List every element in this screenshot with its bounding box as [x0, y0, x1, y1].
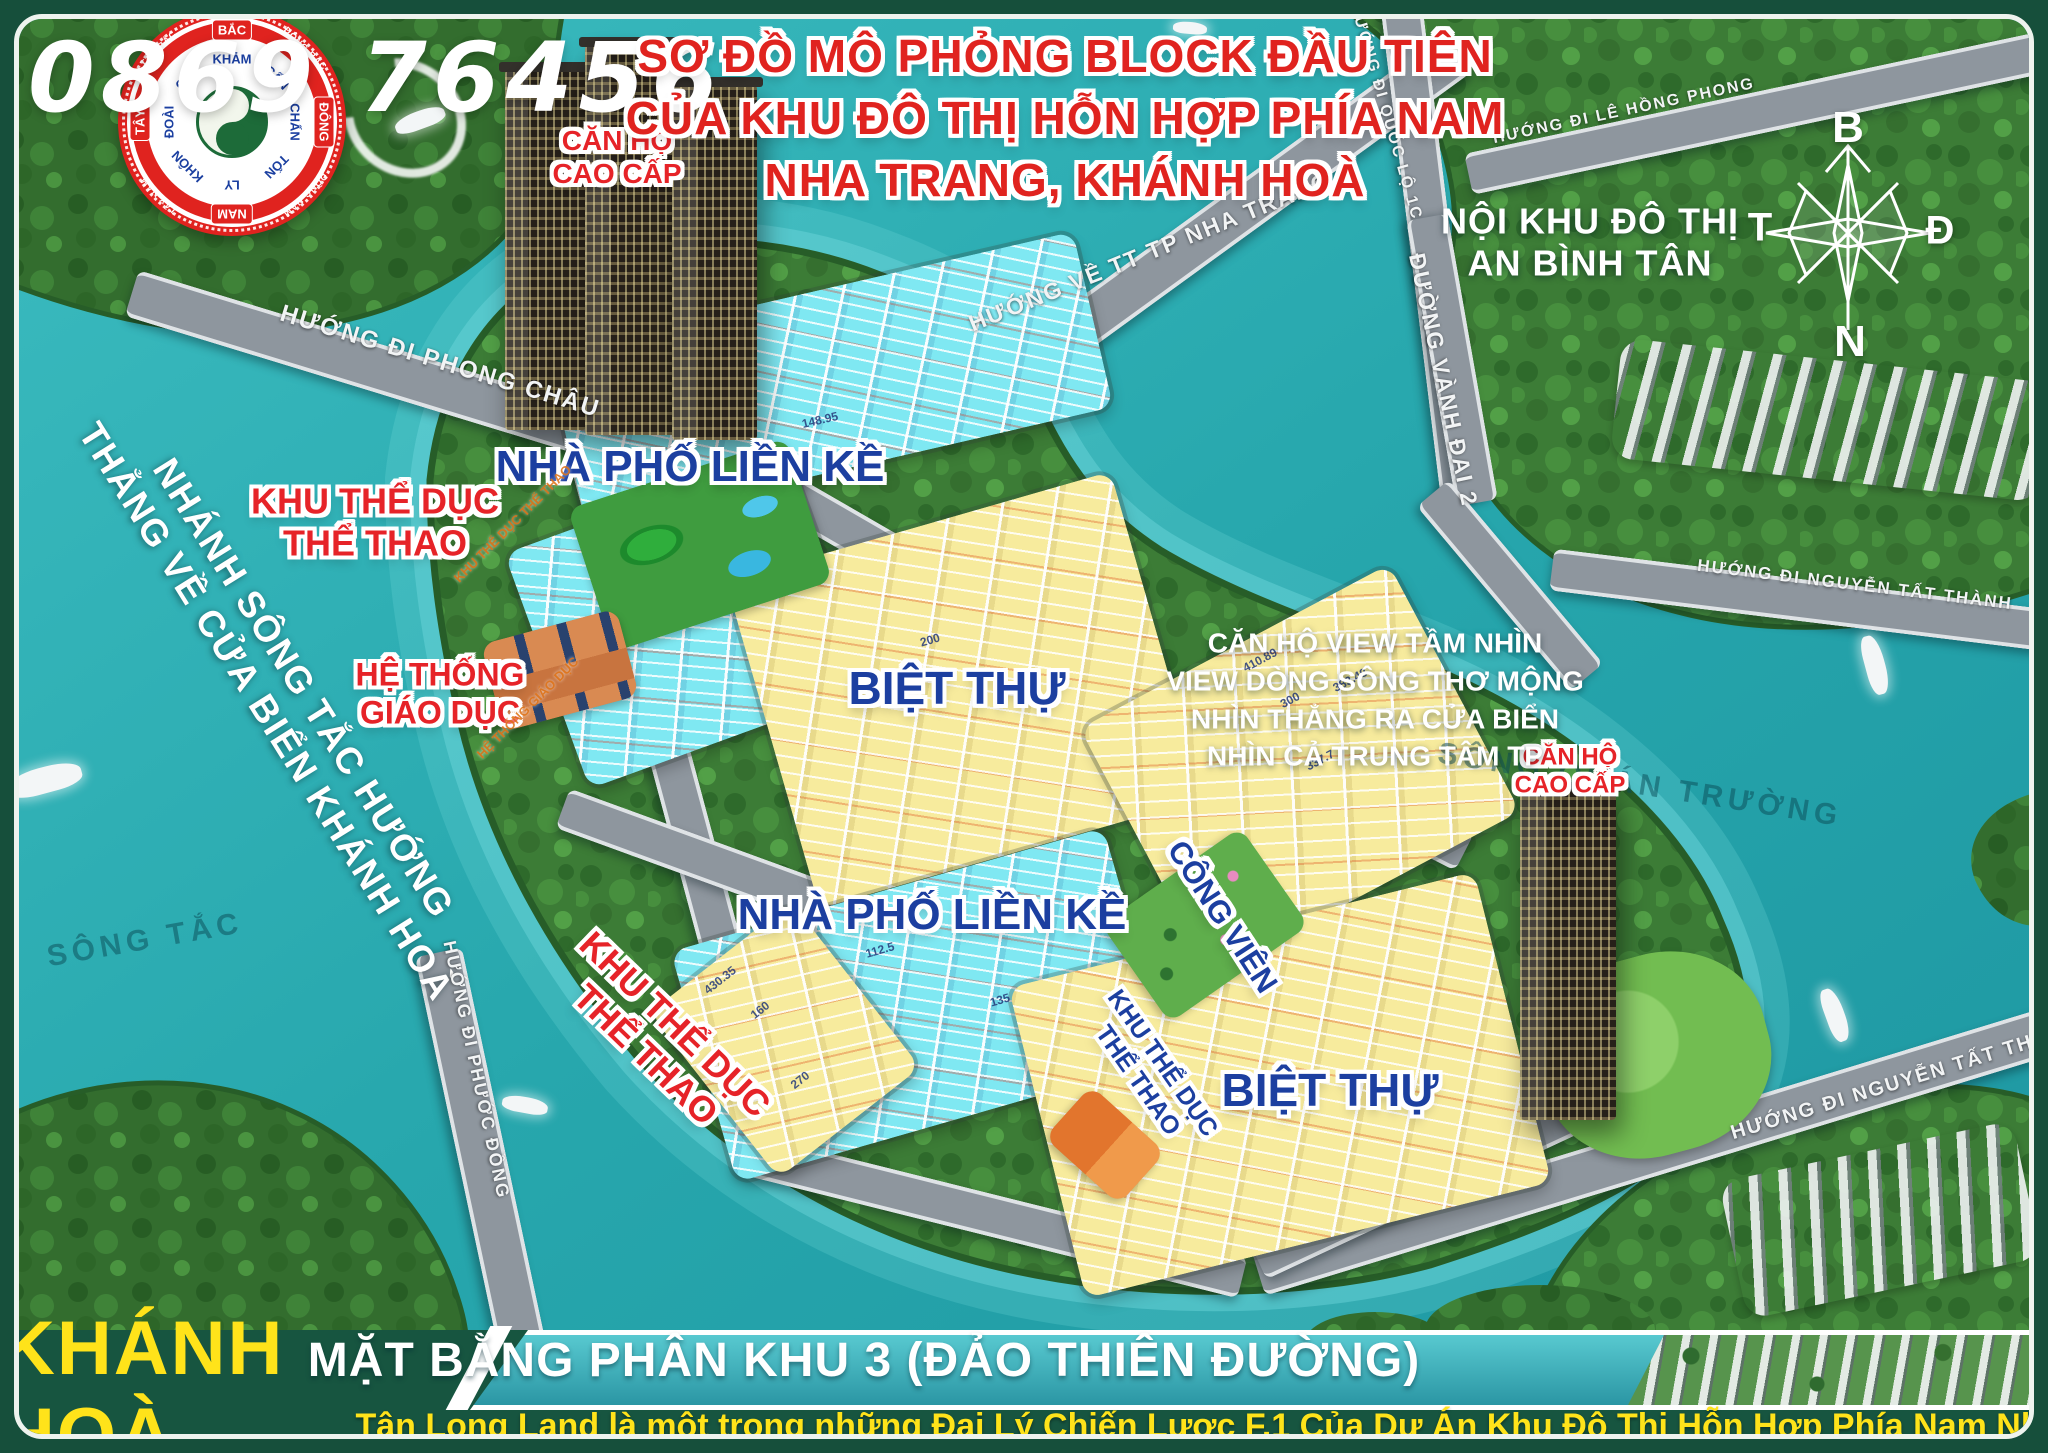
- map-area: SÔNG TẮC SÔNG QUÁN TRƯỜNG NHÁNH SÔNG TẮC…: [14, 14, 2034, 1439]
- poster-title: SƠ ĐỒ MÔ PHỎNG BLOCK ĐẦU TIÊN CỦA KHU ĐÔ…: [626, 25, 1505, 211]
- note-line4: NHÌN CẢ TRUNG TÂM TP: [1166, 738, 1583, 776]
- note-line1: CĂN HỘ VIEW TẦM NHÌN: [1166, 624, 1583, 662]
- logo-trigram: LY: [224, 178, 239, 193]
- poster-frame: SÔNG TẮC SÔNG QUÁN TRƯỜNG NHÁNH SÔNG TẮC…: [0, 0, 2048, 1453]
- footer-bar: KHÁNH HOÀ MẶT BẰNG PHÂN KHU 3 (ĐẢO THIÊN…: [14, 1330, 2034, 1439]
- callout-line2: CAO CẤP: [1515, 772, 1626, 800]
- education-label-line1: HỆ THỐNG: [356, 656, 525, 694]
- compass-east-letter: Đ: [1926, 209, 1955, 254]
- note-line2: VIEW DÒNG SÔNG THƠ MỘNG: [1166, 662, 1583, 700]
- poster-title-line1: SƠ ĐỒ MÔ PHỎNG BLOCK ĐẦU TIÊN: [626, 25, 1505, 87]
- area-label-villa-1: BIỆT THỰ: [848, 661, 1065, 715]
- area-label-education: HỆ THỐNG GIÁO DỤC: [356, 656, 525, 732]
- footer-aerial-strip: [1628, 1335, 2034, 1405]
- area-label-townhouse-2: NHÀ PHỐ LIỀN KỀ: [738, 889, 1127, 941]
- compass-west-letter: T: [1748, 206, 1772, 251]
- compass-south-letter: N: [1834, 317, 1866, 367]
- compass-north-letter: B: [1832, 103, 1864, 153]
- poster-title-line3: NHA TRANG, KHÁNH HOÀ: [626, 149, 1505, 211]
- sports-label-line2: THỂ THAO: [251, 523, 499, 565]
- apartment-tower-east: [1520, 790, 1616, 1120]
- area-label-villa-2: BIỆT THỰ: [1221, 1063, 1438, 1117]
- logo-south-badge: NAM: [211, 204, 253, 225]
- poster-title-line2: CỦA KHU ĐÔ THỊ HỖN HỢP PHÍA NAM: [626, 87, 1505, 149]
- phone-part1: 0869: [28, 22, 319, 134]
- note-line3: NHÌN THẲNG RA CỬA BIỂN: [1166, 700, 1583, 738]
- footer-plan-title: MẶT BẰNG PHÂN KHU 3 (ĐẢO THIÊN ĐƯỜNG): [110, 1330, 1618, 1390]
- area-label-sports-1: KHU THỂ DỤC THỂ THAO: [251, 481, 499, 566]
- note-an-binh-tan: NỘI KHU ĐÔ THỊ AN BÌNH TÂN: [1441, 201, 1739, 286]
- note-apartment-view: CĂN HỘ VIEW TẦM NHÌN VIEW DÒNG SÔNG THƠ …: [1166, 624, 1583, 775]
- footer-tagline: Tân Long Land là một trong những Đại Lý …: [480, 1400, 2034, 1439]
- sports-label-line1: KHU THỂ DỤC: [251, 481, 499, 523]
- note-line2: AN BÌNH TÂN: [1441, 243, 1739, 285]
